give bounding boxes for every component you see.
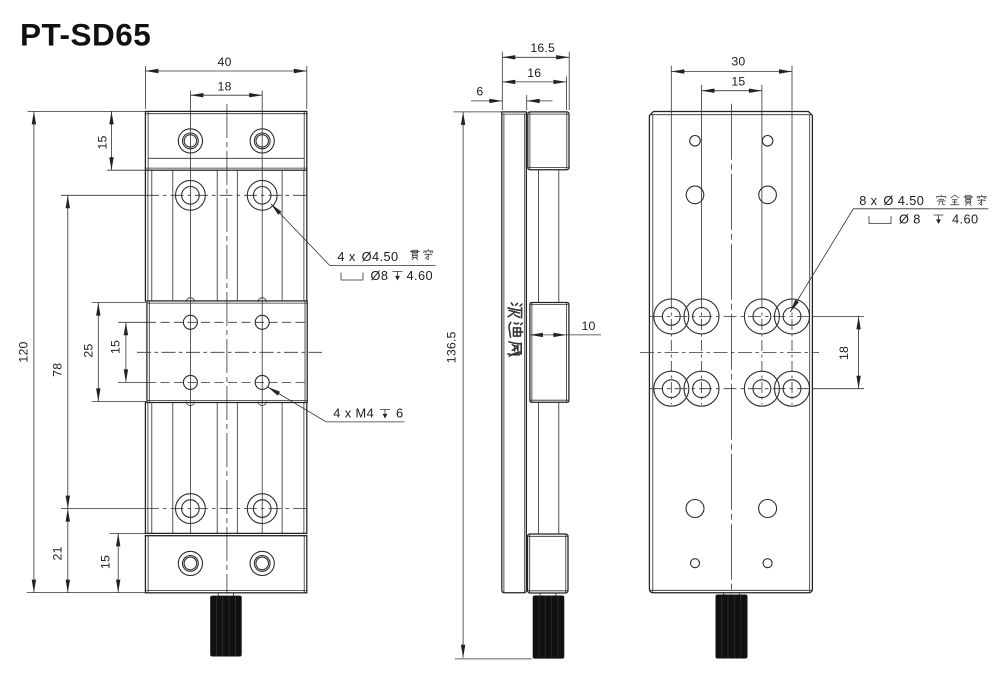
svg-text:4.60: 4.60 bbox=[407, 268, 434, 283]
svg-text:18: 18 bbox=[218, 79, 232, 93]
svg-text:15: 15 bbox=[731, 74, 745, 88]
svg-text:4 x M4: 4 x M4 bbox=[333, 406, 374, 421]
svg-text:6: 6 bbox=[396, 406, 404, 421]
svg-text:40: 40 bbox=[218, 55, 232, 69]
svg-text:4 x Ø4.50: 4 x Ø4.50 bbox=[337, 249, 398, 264]
svg-text:78: 78 bbox=[51, 363, 65, 377]
svg-text:18: 18 bbox=[837, 346, 851, 360]
svg-text:15: 15 bbox=[98, 555, 112, 569]
svg-text:21: 21 bbox=[50, 546, 64, 560]
svg-text:Ø 8: Ø 8 bbox=[899, 211, 921, 226]
svg-text:15: 15 bbox=[96, 135, 110, 149]
svg-text:120: 120 bbox=[17, 341, 31, 362]
svg-text:6: 6 bbox=[476, 84, 483, 98]
svg-text:4.60: 4.60 bbox=[952, 211, 979, 226]
svg-text:15: 15 bbox=[109, 340, 123, 354]
svg-text:10: 10 bbox=[581, 319, 595, 333]
svg-text:16.5: 16.5 bbox=[530, 41, 555, 55]
svg-text:136.5: 136.5 bbox=[445, 331, 459, 363]
svg-text:25: 25 bbox=[81, 344, 95, 358]
svg-text:PT-SD65: PT-SD65 bbox=[20, 17, 151, 53]
svg-text:Ø8: Ø8 bbox=[371, 268, 389, 283]
svg-text:30: 30 bbox=[731, 54, 745, 68]
svg-text:16: 16 bbox=[527, 66, 541, 80]
svg-text:8 x Ø 4.50: 8 x Ø 4.50 bbox=[859, 193, 924, 208]
